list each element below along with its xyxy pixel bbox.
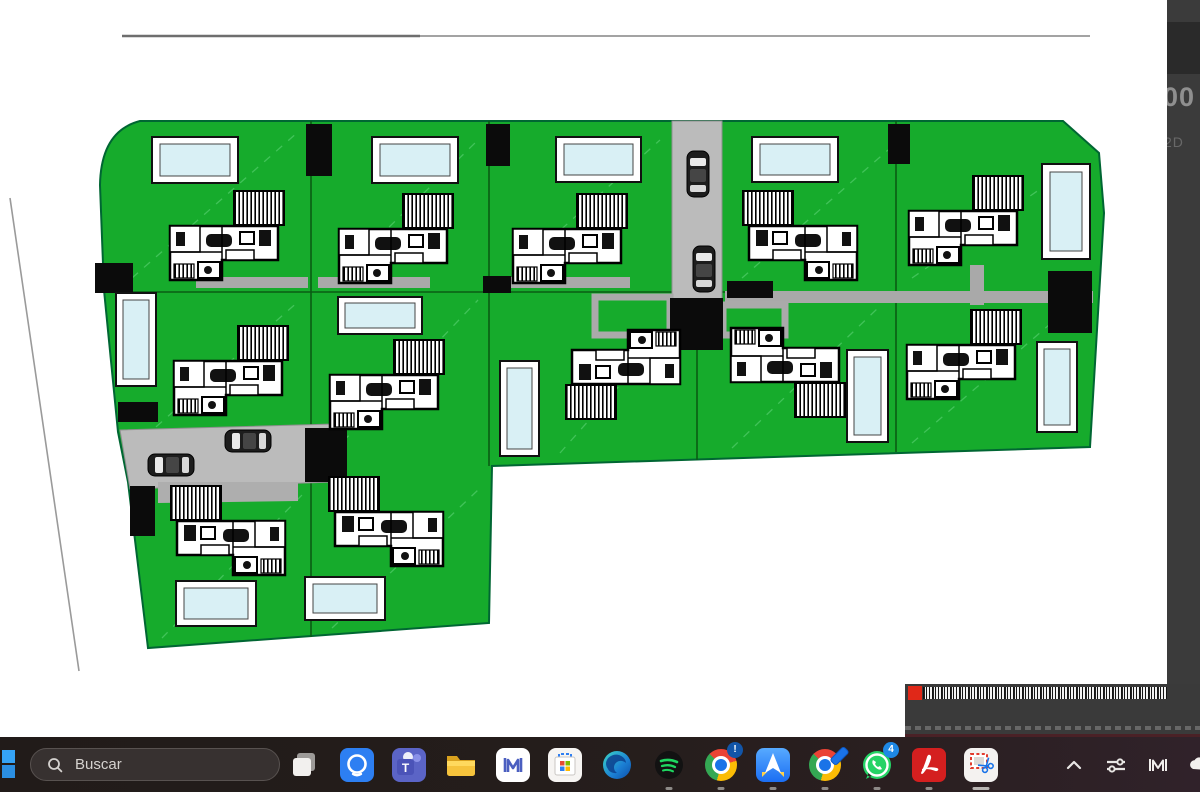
- chrome-profile-icon[interactable]: [808, 748, 842, 782]
- search-box[interactable]: [30, 748, 280, 781]
- snipping-tool-icon[interactable]: [964, 748, 998, 782]
- whatsapp-icon[interactable]: 4: [860, 748, 894, 782]
- chat-app-icon[interactable]: [340, 748, 374, 782]
- legend-red-swatch: [908, 686, 922, 700]
- file-explorer-icon[interactable]: [444, 748, 478, 782]
- windows-start-icon[interactable]: [0, 750, 15, 778]
- side-window-dark-block: [1167, 22, 1200, 74]
- left-boundary-line: [10, 198, 79, 671]
- site-plan-drawing: [0, 0, 1200, 737]
- microsoft-store-icon[interactable]: [548, 748, 582, 782]
- tray-tune-icon[interactable]: [1103, 752, 1129, 778]
- onedrive-cloud-icon[interactable]: [1187, 752, 1200, 778]
- side-window-partial-label: 2D: [1167, 134, 1184, 150]
- teams-icon[interactable]: T: [392, 748, 426, 782]
- legend-tick-strip: [923, 687, 1167, 699]
- spotify-icon[interactable]: [652, 748, 686, 782]
- spark-mail-icon[interactable]: [756, 748, 790, 782]
- acrobat-icon[interactable]: [912, 748, 946, 782]
- whatsapp-badge: 4: [883, 742, 899, 758]
- chrome-icon[interactable]: !: [704, 748, 738, 782]
- task-view-icon[interactable]: [288, 748, 322, 782]
- tray-expand-icon[interactable]: [1061, 752, 1087, 778]
- search-input[interactable]: [73, 755, 247, 774]
- m-bars-app-icon[interactable]: [496, 748, 530, 782]
- tray-m-icon[interactable]: [1145, 752, 1171, 778]
- taskbar-apps: T: [288, 737, 998, 792]
- search-icon: [47, 757, 63, 773]
- chrome-badge: !: [727, 742, 743, 758]
- side-window-partial-number: 00: [1167, 82, 1195, 113]
- plan-canvas: [0, 0, 1200, 737]
- bottom-window-fragment: [905, 684, 1200, 737]
- side-window-edge: 00 2D: [1167, 0, 1200, 737]
- taskbar: T: [0, 737, 1200, 792]
- edge-icon[interactable]: [600, 748, 634, 782]
- system-tray: [1061, 737, 1200, 792]
- legend-faint-text-row: [905, 726, 1200, 730]
- svg-text:T: T: [402, 761, 410, 775]
- desktop-screen: 00 2D: [0, 0, 1200, 792]
